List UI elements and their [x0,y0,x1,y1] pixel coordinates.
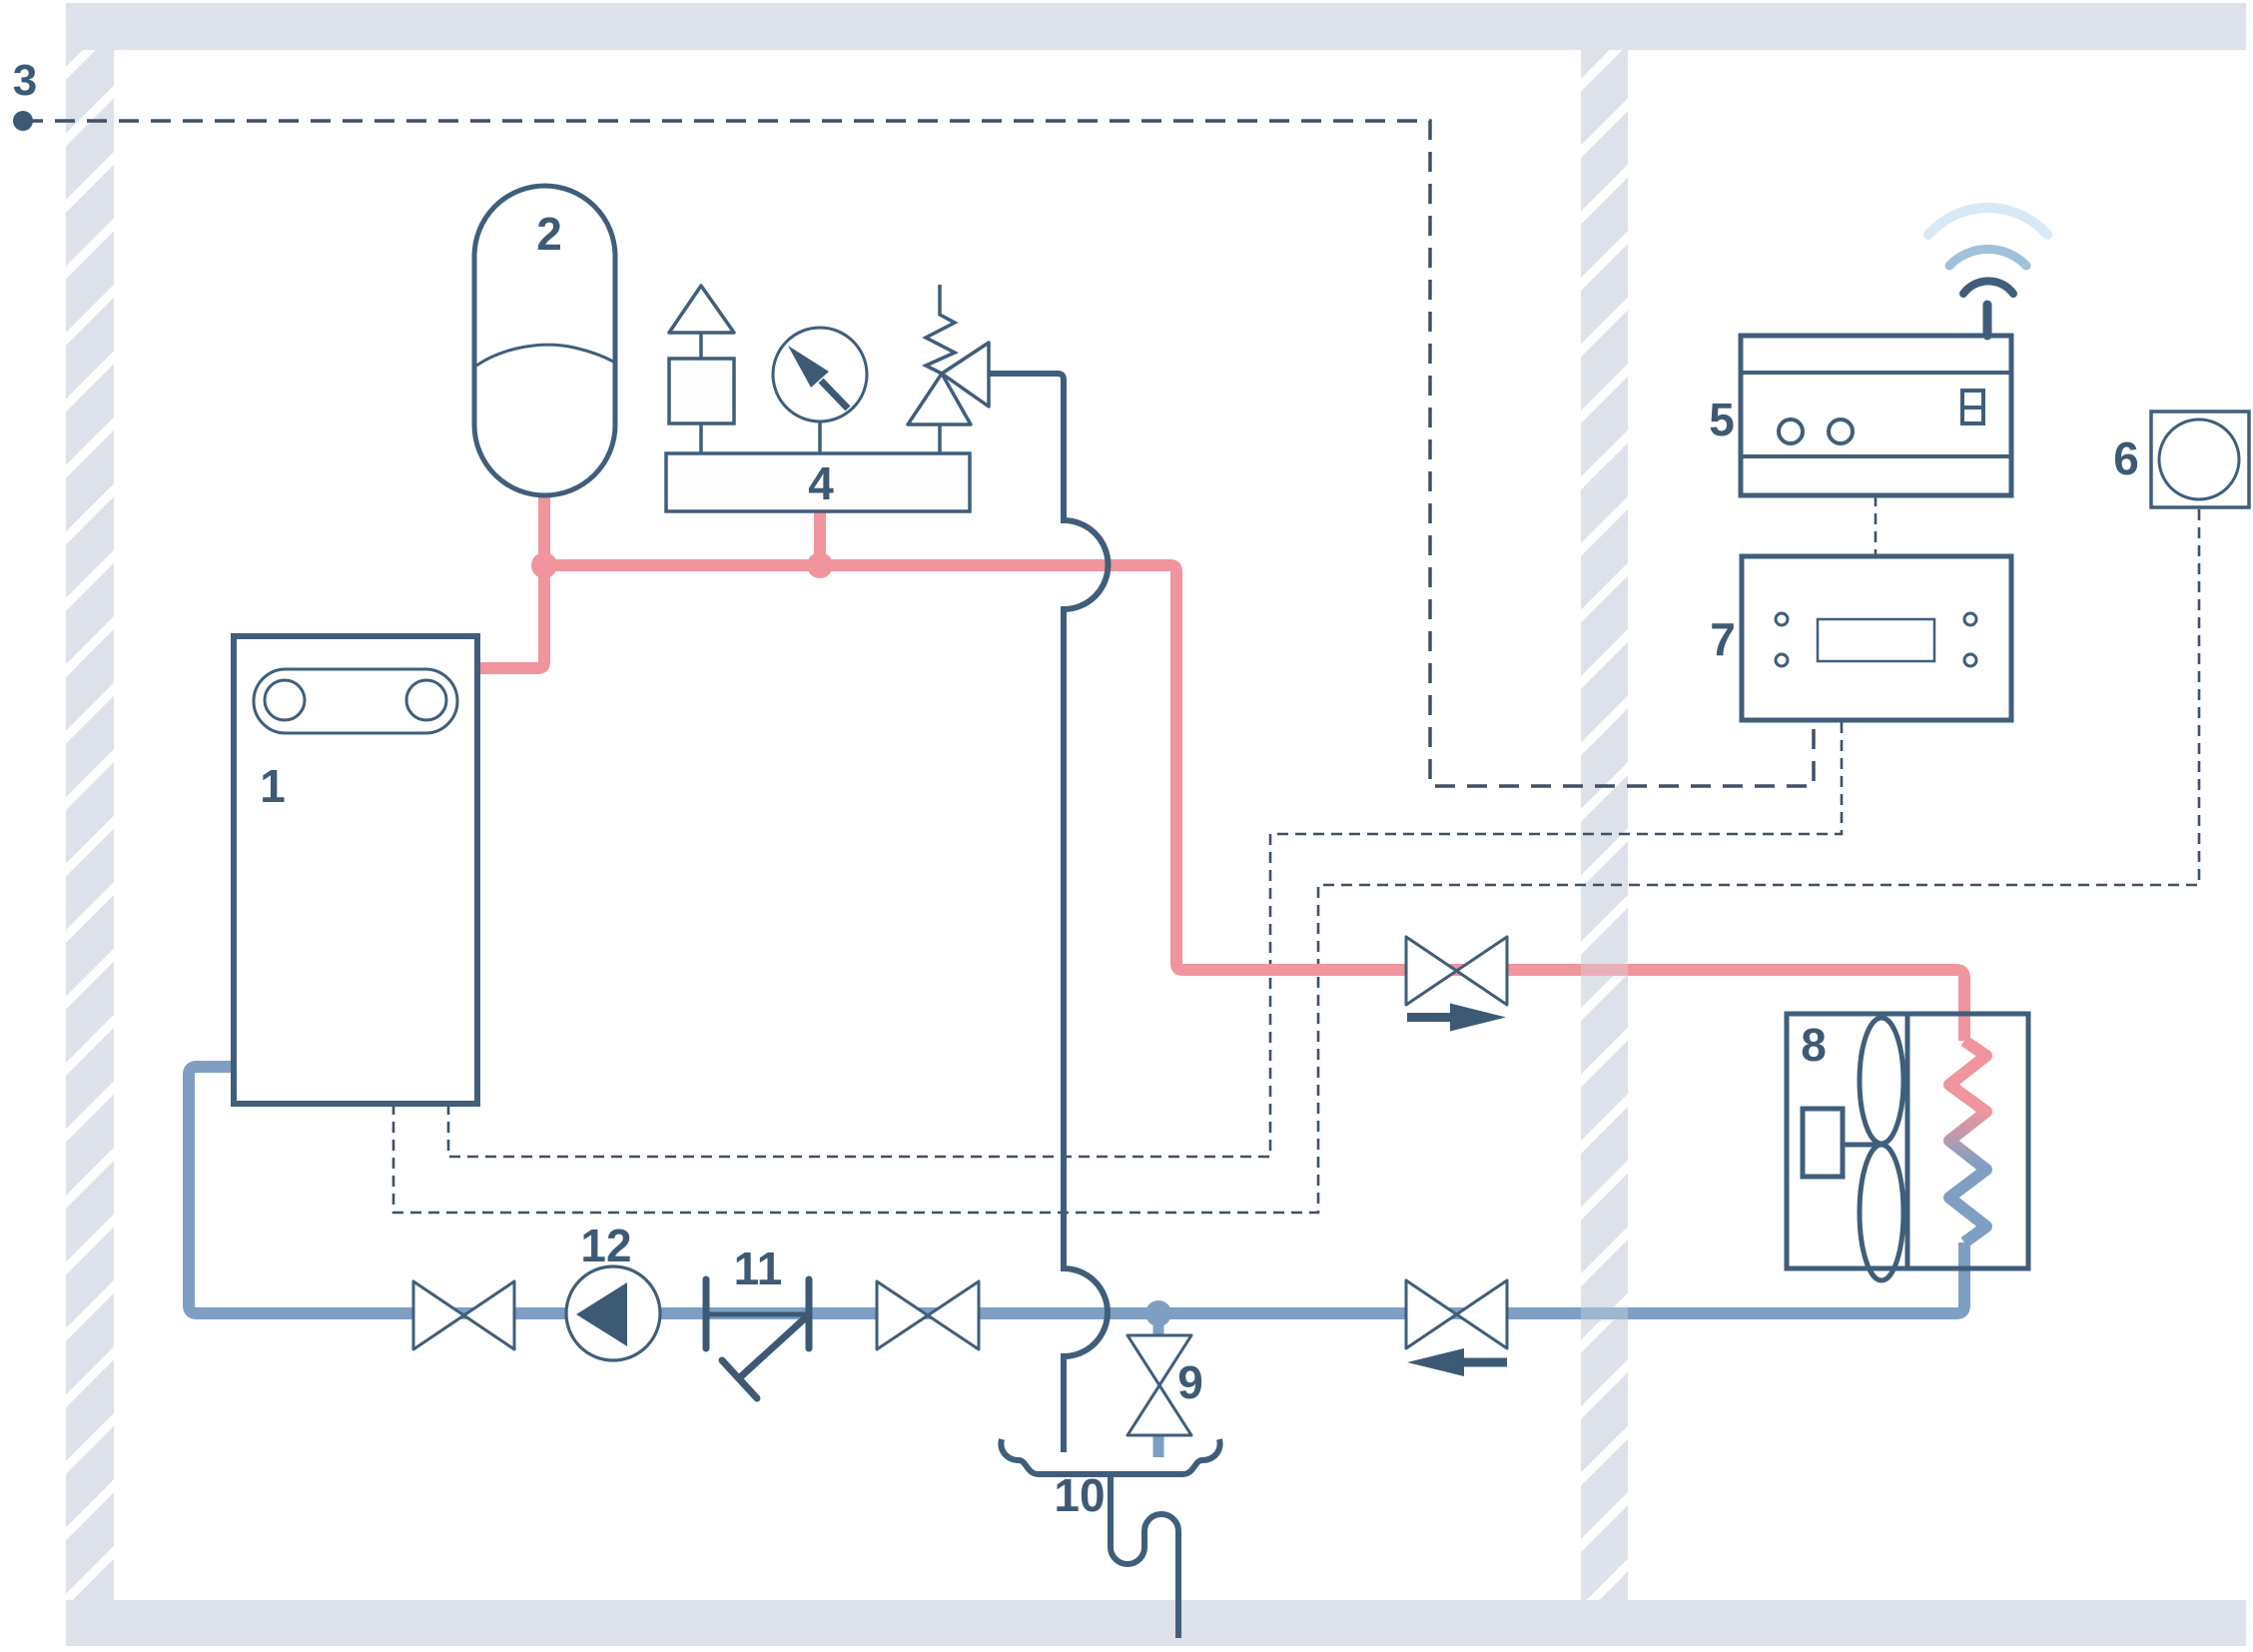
svg-text:2: 2 [536,208,562,260]
svg-text:8: 8 [1801,1019,1827,1071]
svg-text:3: 3 [13,56,37,105]
svg-text:7: 7 [1710,613,1736,665]
svg-text:6: 6 [2113,432,2139,484]
svg-text:5: 5 [1709,394,1735,445]
svg-text:4: 4 [808,457,834,509]
svg-text:9: 9 [1177,1356,1203,1408]
svg-text:1: 1 [260,760,286,812]
svg-text:12: 12 [580,1220,631,1271]
svg-text:10: 10 [1054,1469,1105,1521]
svg-text:11: 11 [734,1242,783,1294]
